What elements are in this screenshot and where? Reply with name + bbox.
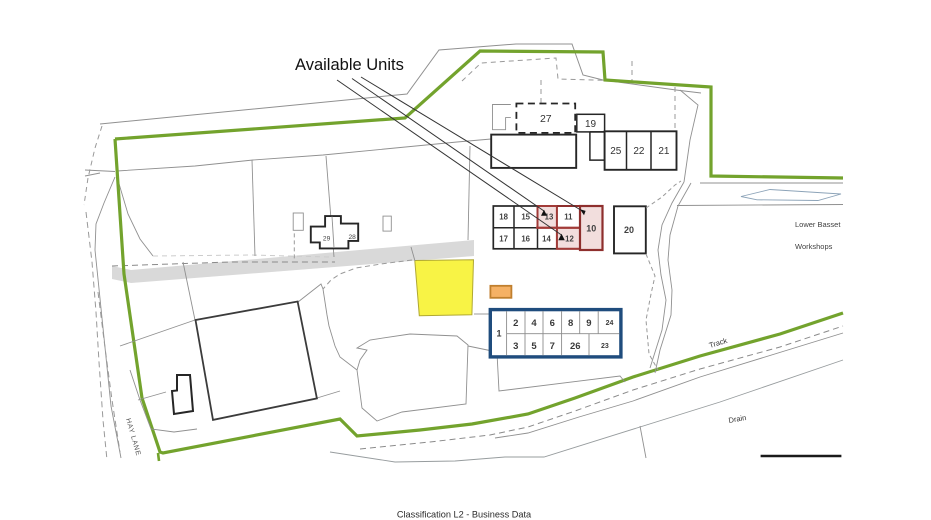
svg-text:23: 23 — [601, 343, 609, 350]
svg-text:12: 12 — [565, 235, 574, 244]
svg-text:Classification L2 - Business D: Classification L2 - Business Data — [397, 510, 532, 520]
svg-text:2: 2 — [513, 318, 518, 329]
svg-text:16: 16 — [521, 235, 530, 244]
svg-text:19: 19 — [585, 119, 597, 130]
svg-text:24: 24 — [606, 320, 614, 327]
svg-text:7: 7 — [550, 341, 555, 352]
svg-text:13: 13 — [545, 213, 554, 222]
svg-text:22: 22 — [633, 146, 645, 157]
svg-text:14: 14 — [542, 235, 551, 244]
svg-text:17: 17 — [499, 235, 508, 244]
svg-text:28: 28 — [349, 234, 357, 241]
svg-text:6: 6 — [550, 318, 555, 329]
svg-text:29: 29 — [323, 236, 331, 243]
svg-text:5: 5 — [531, 341, 537, 352]
svg-text:21: 21 — [658, 146, 670, 157]
svg-text:4: 4 — [531, 318, 537, 329]
svg-text:26: 26 — [570, 341, 581, 352]
svg-text:9: 9 — [586, 318, 591, 329]
svg-text:27: 27 — [540, 113, 552, 125]
svg-text:25: 25 — [610, 146, 622, 157]
svg-text:Workshops: Workshops — [795, 242, 833, 251]
svg-text:HAY LANE: HAY LANE — [124, 418, 141, 457]
svg-text:10: 10 — [586, 224, 596, 234]
svg-text:Drain: Drain — [728, 413, 747, 425]
svg-text:1: 1 — [496, 329, 501, 339]
svg-text:Lower Basset: Lower Basset — [795, 220, 841, 229]
svg-text:20: 20 — [624, 225, 634, 235]
svg-text:11: 11 — [564, 213, 573, 222]
svg-text:15: 15 — [521, 213, 530, 222]
svg-text:8: 8 — [568, 318, 573, 329]
svg-text:Available Units: Available Units — [295, 56, 404, 74]
svg-text:18: 18 — [499, 213, 508, 222]
svg-text:3: 3 — [513, 341, 518, 352]
